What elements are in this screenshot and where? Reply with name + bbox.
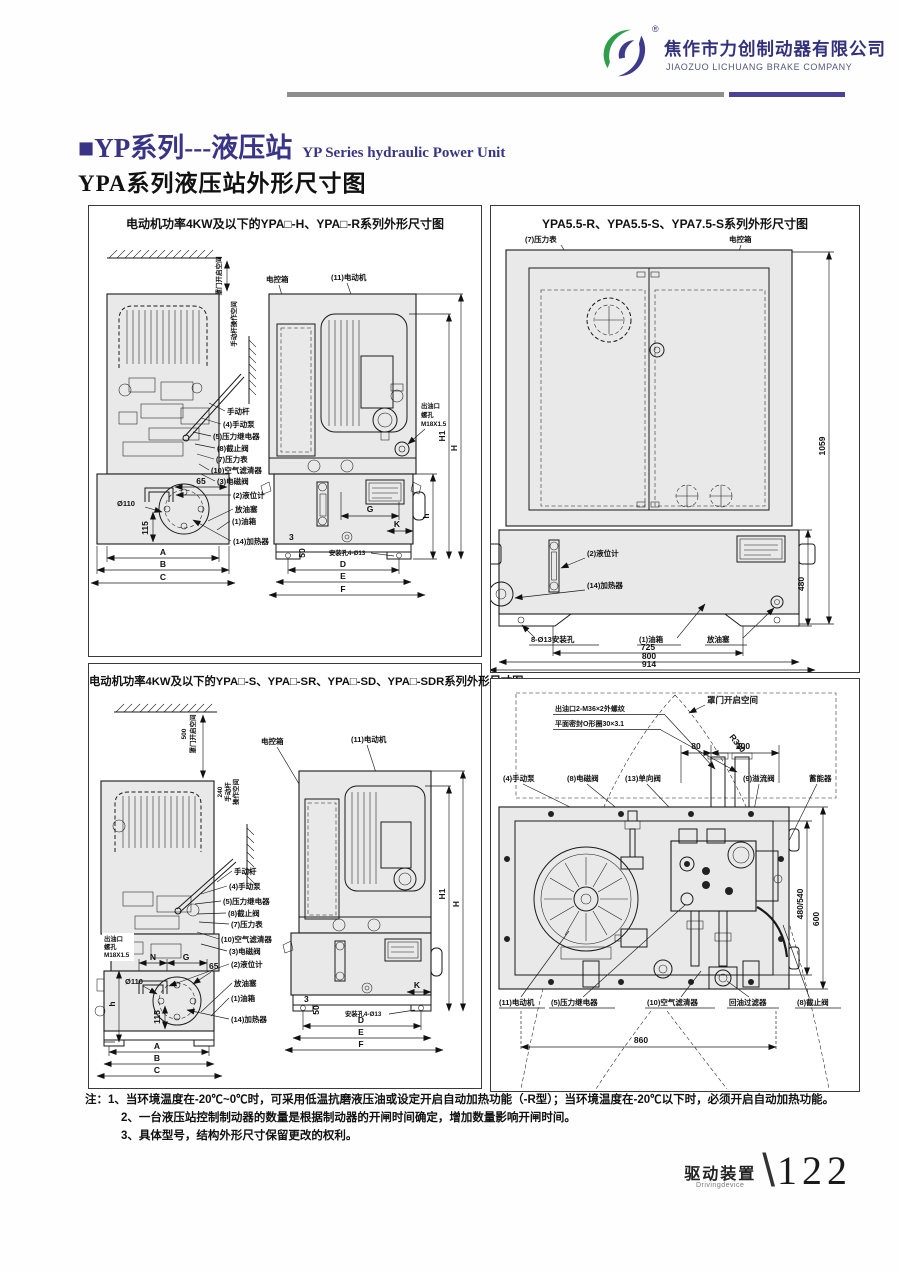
p1-stop-valve-label: (8)截止阀 <box>217 443 249 453</box>
p4-motor-label: (11)电动机 <box>499 997 535 1007</box>
note-item-3: 3、具体型号，结构外形尺寸保留更改的权利。 <box>121 1130 357 1142</box>
p4-air-filter-label: (10)空气滤清器 <box>647 997 698 1007</box>
company-name-cn: 焦作市力创制动器有限公司 <box>664 36 886 61</box>
p1-dim-dia110: Ø110 <box>117 499 135 508</box>
p1-dim-D: D <box>340 559 346 569</box>
p1-motor-label: (11)电动机 <box>331 272 367 282</box>
p1-outlet-l2: 螺孔 <box>421 410 434 419</box>
p2-cabinet: (7)压力表 电控箱 <box>506 234 792 526</box>
p1-dim-K: K <box>394 519 401 529</box>
p2-level-gauge-label: (2)液位计 <box>587 548 619 558</box>
panel-ypa55: YPA5.5-R、YPA5.5-S、YPA7.5-S系列外形尺寸图 (7)压力表… <box>490 205 860 673</box>
section-title-row: ■YP系列---液压站YP Series hydraulic Power Uni… <box>78 126 505 165</box>
panel4-drawing: 罩门开启空间 R390 出油口2-M36×2外螺纹 平面密封O形圈30×3.1 … <box>491 679 859 1091</box>
p3-hand-pump-label: (4)手动泵 <box>229 881 261 891</box>
notes-prefix: 注： <box>85 1094 108 1106</box>
p4-outlet-l2: 平面密封O形圈30×3.1 <box>555 719 624 728</box>
note-line-1: 注：1、当环境温度在-20℃~0℃时，可采用低温抗磨液压油或设定开启自动加热功能… <box>85 1092 875 1110</box>
footer-section: 驱动装置 Drivingdevice <box>684 1160 756 1189</box>
p1-front-view: 罩门开启空间 手动杆操作空间 65 Ø110 <box>91 250 256 583</box>
p1-dim-A: A <box>160 547 166 557</box>
p3-dim-B: B <box>154 1053 160 1063</box>
p1-level-gauge-label: (2)液位计 <box>233 490 265 500</box>
p3-dim-K: K <box>414 980 421 990</box>
p3-side-view: 电控箱 (11)电动机 <box>261 734 465 1050</box>
company-name-en: JIAOZUO LICHUANG BRAKE COMPANY <box>666 62 852 72</box>
p3-air-filter-label: (10)空气滤清器 <box>221 934 272 944</box>
p3-lever-value: 240 <box>217 786 224 797</box>
p3-dim-N: N <box>150 952 156 962</box>
p4-dim-600: 600 <box>811 912 821 926</box>
note-item-1: 1、当环境温度在-20℃~0℃时，可采用低温抗磨液压油或设定开启自动加热功能（-… <box>108 1094 834 1106</box>
p3-dim-H1: H1 <box>437 888 447 899</box>
p1-dim-65: 65 <box>196 476 206 486</box>
p3-hood-space-value: 500 <box>181 728 188 739</box>
p4-hand-pump-label: (4)手动泵 <box>503 773 535 783</box>
p3-control-box-label: 电控箱 <box>261 736 284 746</box>
company-logo-icon <box>596 24 654 82</box>
p3-dim-A: A <box>154 1041 160 1051</box>
p1-side-view: 电控箱 (11)电动机 出油口 螺孔 M18X1.5 <box>261 272 463 595</box>
notes-block: 注：1、当环境温度在-20℃~0℃时，可采用低温抗磨液压油或设定开启自动加热功能… <box>85 1092 875 1145</box>
p3-pressure-gauge-label: (7)压力表 <box>231 919 263 929</box>
footer-separator: \ <box>762 1152 775 1189</box>
catalog-page: ® 焦作市力创制动器有限公司 JIAOZUO LICHUANG BRAKE CO… <box>0 0 900 1273</box>
p3-lever-l1: 手动杆 <box>223 782 232 802</box>
panel2-drawing: (7)压力表 电控箱 <box>491 206 859 672</box>
p4-relief-valve-label: (9)溢流阀 <box>743 773 775 783</box>
p3-dim-F: F <box>358 1039 363 1049</box>
p2-dim-1059: 1059 <box>817 436 827 455</box>
p3-outlet-l1: 出油口 <box>104 934 123 943</box>
p1-dim-B: B <box>160 559 166 569</box>
p4-hood-space-label: 罩门开启空间 <box>707 695 758 705</box>
page-subtitle: YPA系列液压站外形尺寸图 <box>78 164 367 198</box>
p1-drain-plug-label: 放油塞 <box>234 504 258 514</box>
p1-pressure-gauge-label: (7)压力表 <box>216 454 248 464</box>
page-footer: 驱动装置 Drivingdevice \ 122 <box>684 1152 852 1189</box>
series-title-en: YP Series hydraulic Power Unit <box>302 145 505 161</box>
p3-hand-lever-label: 手动杆 <box>234 866 257 876</box>
p4-solenoid-valve-label: (8)电磁阀 <box>567 773 599 783</box>
p4-accumulator-label: 蓄能器 <box>809 773 832 783</box>
page-number: 122 <box>777 1153 852 1189</box>
p3-outlet-l3: M18X1.5 <box>104 952 130 959</box>
p1-control-box-label: 电控箱 <box>266 274 289 284</box>
panel1-drawing: 罩门开启空间 手动杆操作空间 65 Ø110 <box>89 206 481 656</box>
p3-dim-h: h <box>107 1001 117 1006</box>
p2-pressure-gauge-label: (7)压力表 <box>525 234 557 244</box>
note-line-3: 3、具体型号，结构外形尺寸保留更改的权利。 <box>85 1128 875 1146</box>
p3-dim-3: 3 <box>304 994 309 1004</box>
p3-pressure-relay-label: (5)压力继电器 <box>223 896 270 906</box>
p4-dim-200: 200 <box>736 741 750 751</box>
p4-dim-480-540: 480/540 <box>795 888 805 919</box>
footer-section-cn: 驱动装置 <box>684 1160 756 1184</box>
p3-dim-E: E <box>358 1027 364 1037</box>
p3-level-gauge-label: (2)液位计 <box>231 959 263 969</box>
p1-pressure-relay-label: (5)压力继电器 <box>213 431 260 441</box>
p4-dim-860: 860 <box>634 1035 648 1045</box>
panel-ypa-s-sr: 电动机功率4KW及以下的YPA□-S、YPA□-SR、YPA□-SD、YPA□-… <box>88 663 482 1089</box>
p4-check-valve-label: (13)单向阀 <box>625 773 661 783</box>
p1-oil-tank-label: (1)油箱 <box>232 516 257 526</box>
p1-dim-E: E <box>340 571 346 581</box>
p3-hood-space-label: 罩门开启空间 <box>188 714 197 754</box>
p2-drain-plug-label: 放油塞 <box>706 634 730 644</box>
p2-dim-914: 914 <box>642 659 656 669</box>
p1-dim-3: 3 <box>289 532 294 542</box>
p2-tank: (2)液位计 (14)加热器 8-Ø13安装孔 (1)油箱 放油塞 <box>491 530 815 645</box>
p4-stop-valve-label: (8)截止阀 <box>797 997 829 1007</box>
p1-outlet-l1: 出油口 <box>421 401 440 410</box>
p4-outlet-l1: 出油口2-M36×2外螺纹 <box>555 704 626 713</box>
p3-outlet-l2: 螺孔 <box>104 942 117 951</box>
p3-dim-50: 50 <box>311 1005 321 1015</box>
p1-lever-space-label: 手动杆操作空间 <box>229 301 238 347</box>
p3-drain-plug-label: 放油塞 <box>233 978 257 988</box>
p1-dim-50: 50 <box>297 548 307 558</box>
p1-dim-C: C <box>160 572 166 582</box>
p1-dim-115: 115 <box>140 521 150 535</box>
panel3-drawing: 500 罩门开启空间 240 手动杆 操作空间 <box>89 664 481 1088</box>
p3-dim-C: C <box>154 1065 160 1075</box>
p3-dim-dia110: Ø110 <box>125 977 143 986</box>
p1-dim-h: h <box>421 513 431 518</box>
p1-heater-label: (14)加热器 <box>233 536 269 546</box>
p4-dim-80: 80 <box>691 741 701 751</box>
p1-hand-lever-label: 手动杆 <box>227 406 250 416</box>
p1-hood-space-label: 罩门开启空间 <box>214 256 223 296</box>
note-item-2: 2、一台液压站控制制动器的数量是根据制动器的开闸时间确定，增加数量影响开闸时间。 <box>121 1112 576 1124</box>
p3-lever-l2: 操作空间 <box>231 779 240 806</box>
p2-heater-label: (14)加热器 <box>587 580 623 590</box>
p3-stop-valve-label: (8)截止阀 <box>228 908 260 918</box>
p2-dim-480: 480 <box>796 577 806 591</box>
p1-dim-G: G <box>367 504 374 514</box>
p3-solenoid-valve-label: (3)电磁阀 <box>229 946 261 956</box>
p3-oil-tank-label: (1)油箱 <box>231 993 256 1003</box>
p1-dim-H: H <box>449 445 459 451</box>
p1-hand-pump-label: (4)手动泵 <box>223 419 255 429</box>
p1-solenoid-valve-label: (3)电磁阀 <box>217 476 249 486</box>
p3-motor-label: (11)电动机 <box>351 734 387 744</box>
header-rule-gray <box>287 92 724 97</box>
p4-outlet-note: 出油口2-M36×2外螺纹 平面密封O形圈30×3.1 <box>553 704 737 772</box>
p3-dim-G: G <box>183 952 190 962</box>
p1-air-filter-label: (10)空气滤清器 <box>211 465 262 475</box>
p1-outlet-l3: M18X1.5 <box>421 421 447 428</box>
p1-dim-F: F <box>340 584 345 594</box>
p3-dim-115: 115 <box>152 1010 162 1024</box>
p4-return-filter-label: 回油过滤器 <box>729 997 767 1007</box>
p2-control-box-label: 电控箱 <box>729 234 752 244</box>
note-line-2: 2、一台液压站控制制动器的数量是根据制动器的开闸时间确定，增加数量影响开闸时间。 <box>85 1110 875 1128</box>
p1-mount-holes-label: 安装孔4-Ø13 <box>329 548 366 557</box>
p4-pressure-relay-label: (5)压力继电器 <box>551 997 598 1007</box>
panel-ypa-h-r: 电动机功率4KW及以下的YPA□-H、YPA□-R系列外形尺寸图 罩门开启空间 <box>88 205 482 657</box>
series-title-cn: ■YP系列---液压站 <box>78 133 292 163</box>
p1-dim-H1: H1 <box>437 430 447 441</box>
header-rule-purple <box>729 92 845 97</box>
p3-dim-H: H <box>451 901 461 907</box>
panel-top-view: 罩门开启空间 R390 出油口2-M36×2外螺纹 平面密封O形圈30×3.1 … <box>490 678 860 1092</box>
p3-heater-label: (14)加热器 <box>231 1014 267 1024</box>
p3-dim-D: D <box>358 1015 364 1025</box>
registered-mark: ® <box>652 24 659 34</box>
